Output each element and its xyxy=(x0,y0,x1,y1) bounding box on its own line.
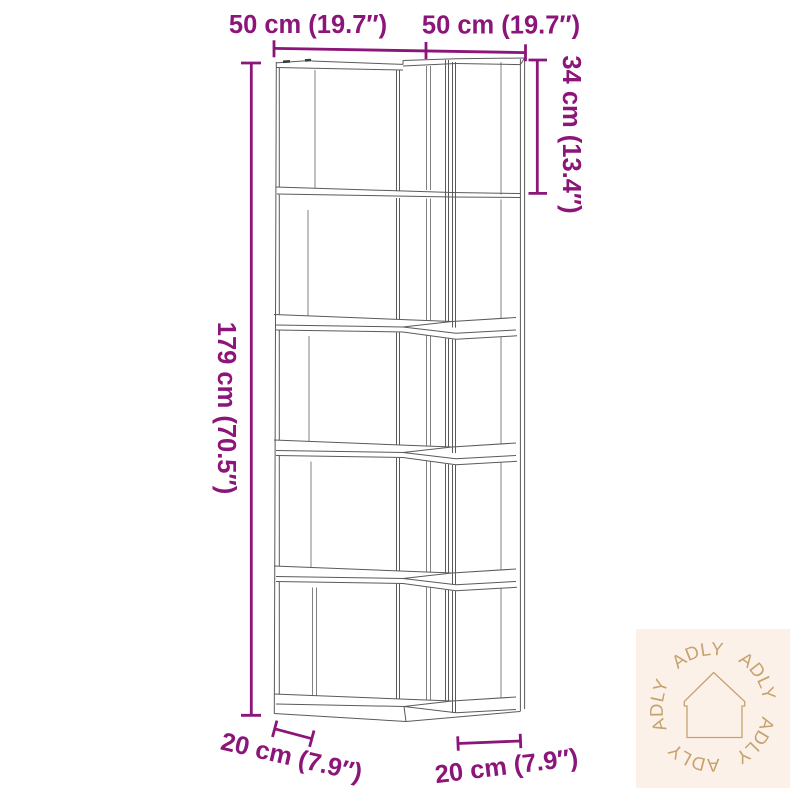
svg-text:50 cm (19.7″): 50 cm (19.7″) xyxy=(422,12,580,40)
svg-text:179 cm (70.5″): 179 cm (70.5″) xyxy=(212,322,240,494)
svg-text:50 cm (19.7″): 50 cm (19.7″) xyxy=(229,11,387,39)
svg-text:34 cm (13.4″): 34 cm (13.4″) xyxy=(557,55,585,213)
